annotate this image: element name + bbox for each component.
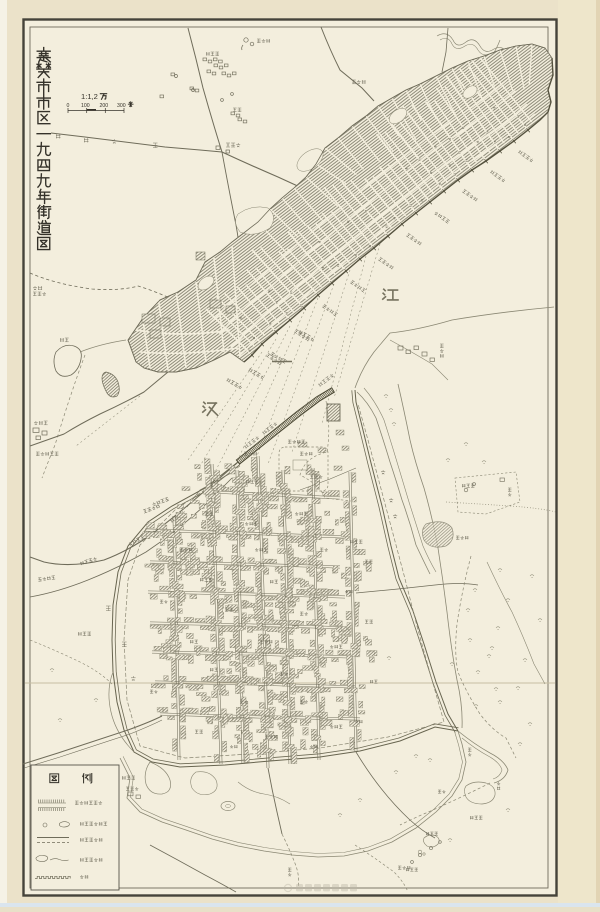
svg-text:100: 100: [81, 103, 90, 109]
svg-text:0: 0: [67, 103, 70, 109]
svg-text:1:1,2: 1:1,2: [81, 92, 98, 101]
svg-text:200: 200: [100, 103, 109, 109]
svg-text:300: 300: [117, 103, 126, 109]
